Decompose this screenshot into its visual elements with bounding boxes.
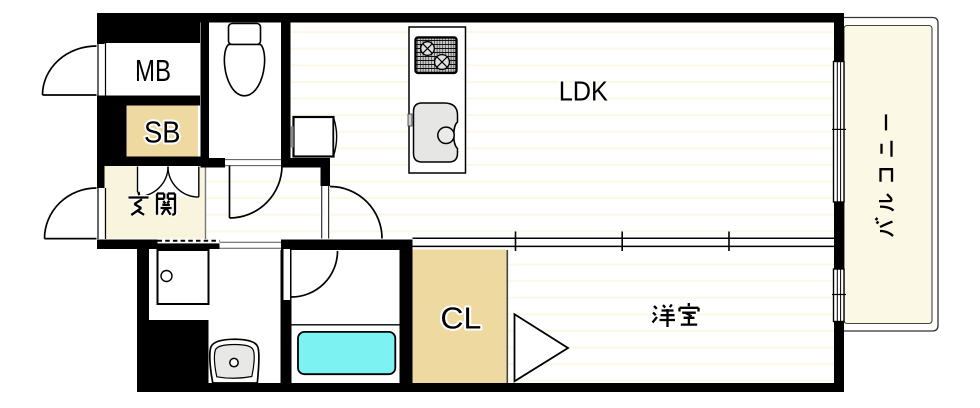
svg-text:LDK: LDK bbox=[559, 75, 609, 106]
svg-text:CL: CL bbox=[440, 300, 481, 335]
svg-text:MB: MB bbox=[135, 53, 171, 88]
svg-text:SB: SB bbox=[144, 114, 181, 149]
